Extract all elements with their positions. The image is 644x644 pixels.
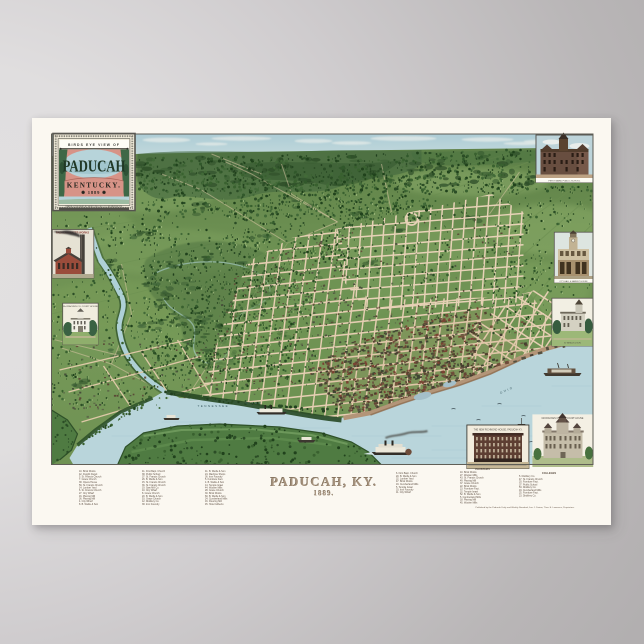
svg-text:TENNESSEE: TENNESSEE — [197, 404, 229, 408]
svg-text:RIVER: RIVER — [245, 401, 262, 405]
